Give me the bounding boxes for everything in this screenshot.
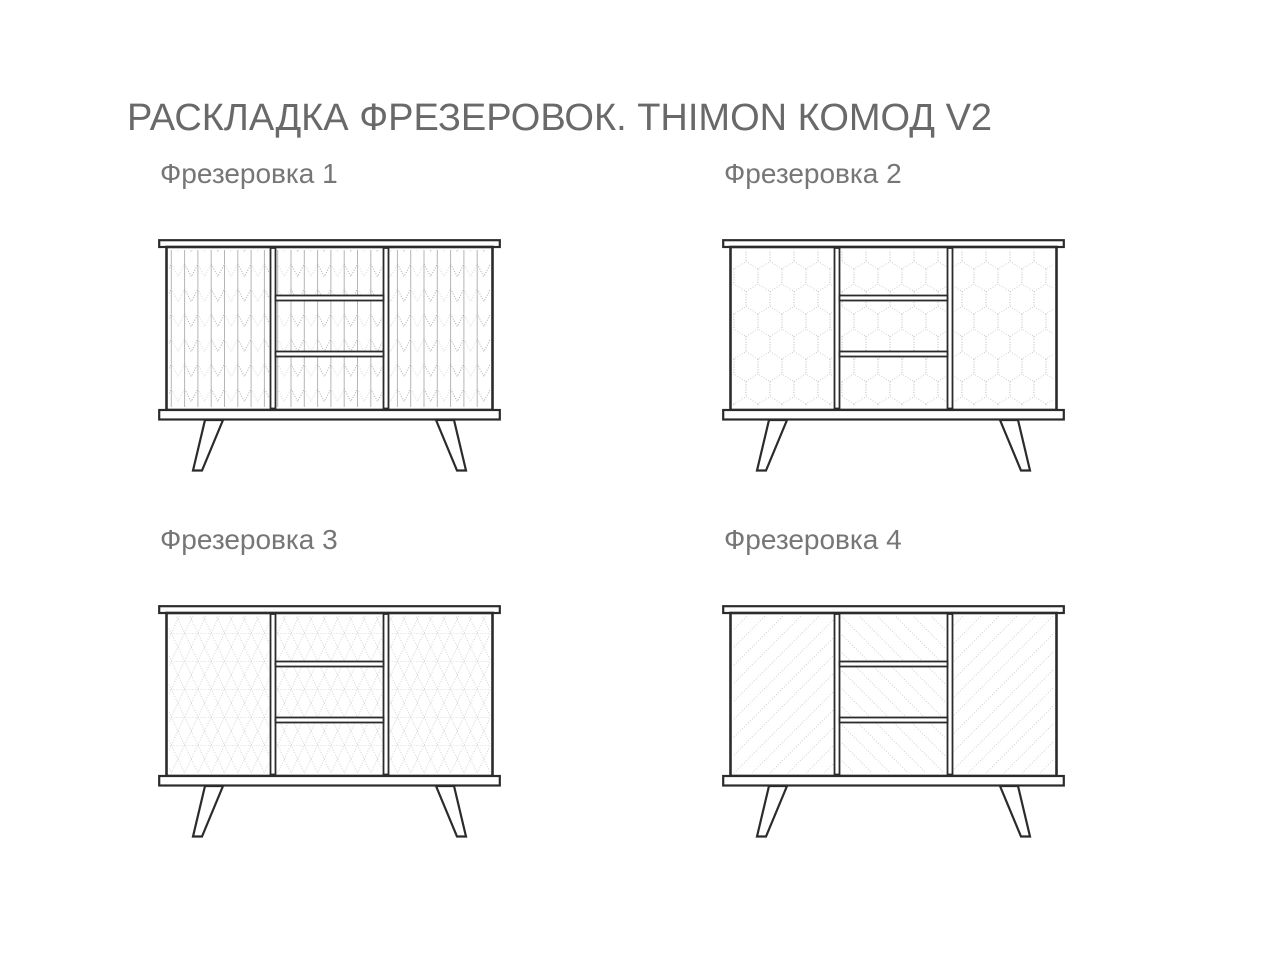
drawer-divider-top xyxy=(840,662,948,667)
drawer-divider-bottom xyxy=(840,718,948,723)
milling-variant: Фрезеровка 4 xyxy=(722,524,1142,839)
drawer-divider-top xyxy=(276,296,384,301)
right-leg xyxy=(1000,420,1030,471)
right-divider xyxy=(948,614,953,775)
milling-variant: Фрезеровка 2 xyxy=(722,158,1142,473)
left-leg xyxy=(757,786,787,837)
right-divider xyxy=(948,248,953,409)
variant-label: Фрезеровка 4 xyxy=(724,524,1142,555)
left-leg xyxy=(193,420,223,471)
right-door-panel xyxy=(954,250,1054,407)
bottom-board xyxy=(723,410,1064,420)
variant-label: Фрезеровка 2 xyxy=(724,158,1142,189)
variant-label: Фрезеровка 3 xyxy=(160,524,578,555)
drawer-divider-bottom xyxy=(276,718,384,723)
dresser-drawing xyxy=(722,239,1065,473)
drawer-divider-top xyxy=(276,662,384,667)
milling-variant: Фрезеровка 1 xyxy=(158,158,578,473)
left-door-panel xyxy=(169,250,269,407)
drawer-divider-bottom xyxy=(276,352,384,357)
right-leg xyxy=(436,420,466,471)
left-divider xyxy=(271,248,276,409)
drawer-divider-top xyxy=(840,296,948,301)
variant-label: Фрезеровка 1 xyxy=(160,158,578,189)
milling-variant: Фрезеровка 3 xyxy=(158,524,578,839)
drawer-divider-bottom xyxy=(840,352,948,357)
drawer-stack-panel xyxy=(277,616,382,773)
left-divider xyxy=(835,614,840,775)
left-divider xyxy=(271,614,276,775)
bottom-board xyxy=(159,410,500,420)
right-leg xyxy=(1000,786,1030,837)
left-leg xyxy=(193,786,223,837)
dresser-drawing xyxy=(158,239,501,473)
right-door-panel xyxy=(390,616,490,773)
left-door-panel xyxy=(733,616,833,773)
bottom-board xyxy=(723,776,1064,786)
right-leg xyxy=(436,786,466,837)
bottom-board xyxy=(159,776,500,786)
right-divider xyxy=(384,248,389,409)
drawer-stack-panel xyxy=(841,616,946,773)
left-door-panel xyxy=(169,616,269,773)
dresser-drawing xyxy=(722,605,1065,839)
left-door-panel xyxy=(733,250,833,407)
left-divider xyxy=(835,248,840,409)
right-divider xyxy=(384,614,389,775)
page-title: РАСКЛАДКА ФРЕЗЕРОВОК. THIMON КОМОД V2 xyxy=(127,99,992,139)
dresser-drawing xyxy=(158,605,501,839)
left-leg xyxy=(757,420,787,471)
drawer-stack-panel xyxy=(277,250,382,407)
right-door-panel xyxy=(390,250,490,407)
drawer-stack-panel xyxy=(841,250,946,407)
right-door-panel xyxy=(954,616,1054,773)
